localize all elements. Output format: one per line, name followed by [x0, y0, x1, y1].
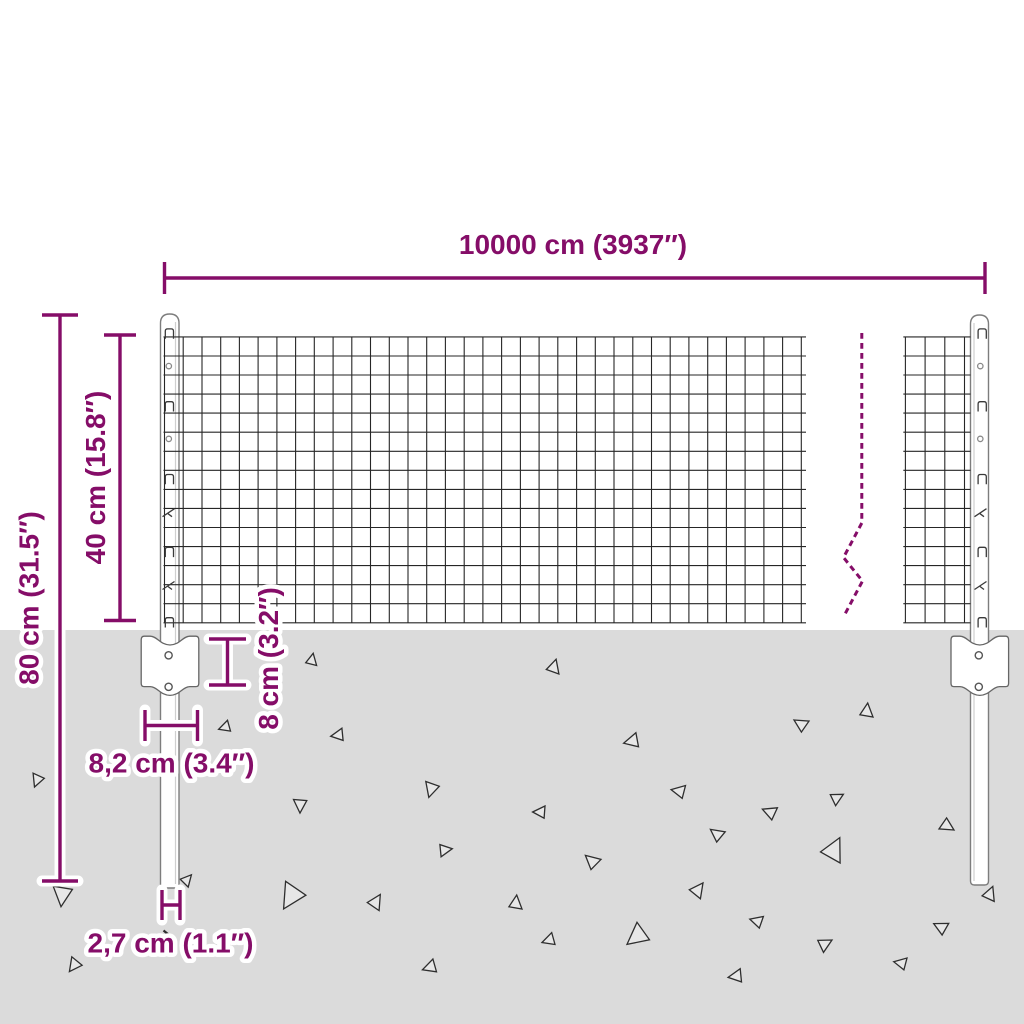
svg-text:80 cm (31.5″): 80 cm (31.5″) [14, 511, 45, 685]
svg-text:10000 cm (3937″): 10000 cm (3937″) [459, 229, 687, 260]
svg-text:8 cm (3.2″): 8 cm (3.2″) [253, 587, 284, 730]
svg-text:40 cm (15.8″): 40 cm (15.8″) [80, 391, 111, 565]
svg-text:8,2 cm (3.4″): 8,2 cm (3.4″) [89, 748, 255, 779]
svg-text:2,7 cm (1.1″): 2,7 cm (1.1″) [88, 928, 254, 959]
